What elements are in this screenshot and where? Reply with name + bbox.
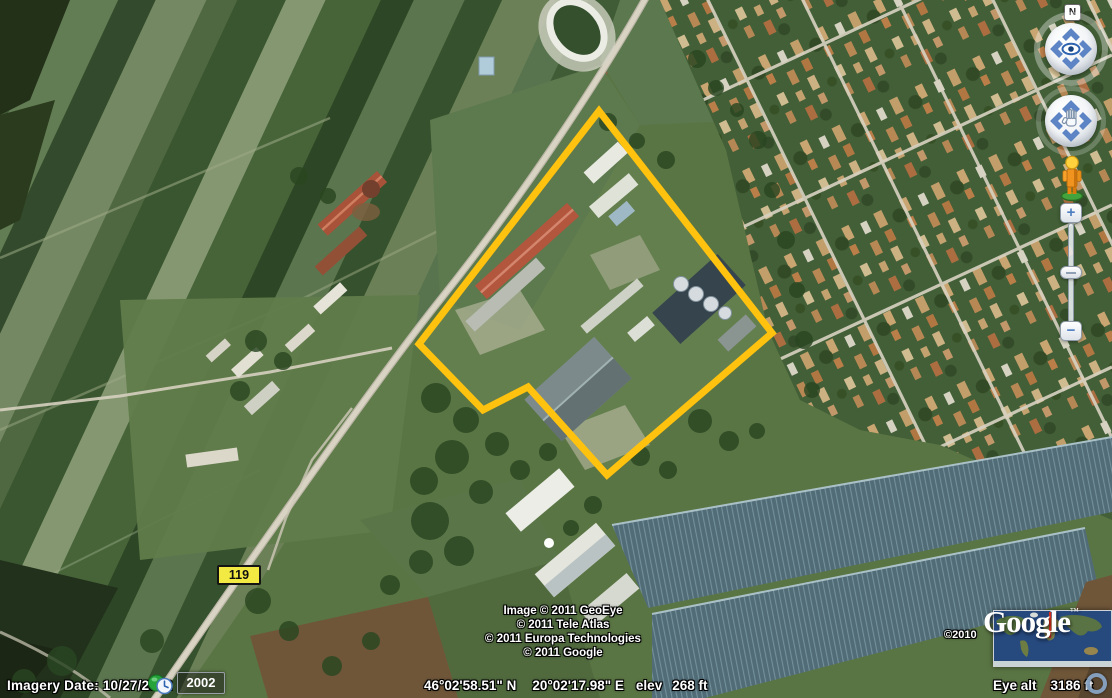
elevation-label: elev: [636, 678, 662, 693]
time-slider-year-box[interactable]: 2002: [177, 672, 225, 694]
historical-imagery-clock-icon[interactable]: [148, 673, 175, 696]
move-joystick[interactable]: [1045, 95, 1097, 147]
move-right-arrow[interactable]: [1081, 114, 1088, 128]
zoom-out-button[interactable]: −: [1060, 321, 1082, 341]
attribution-line: Image © 2011 GeoEye: [463, 604, 663, 618]
eye-altitude: Eye alt3186 ft: [993, 678, 1093, 693]
eye-alt-label: Eye alt: [993, 678, 1037, 693]
overview-copyright: ©2010: [944, 629, 977, 641]
look-joystick[interactable]: [1045, 23, 1097, 75]
street-view-pegman[interactable]: [1057, 153, 1087, 202]
streaming-progress-indicator: [1086, 673, 1107, 694]
map-canvas[interactable]: [0, 0, 1112, 698]
look-up-arrow[interactable]: [1064, 32, 1078, 39]
zoom-slider-thumb[interactable]: [1060, 266, 1082, 279]
pointer-coordinates: 46°02'58.51" N20°02'17.98" Eelev268 ft: [424, 678, 707, 693]
move-left-arrow[interactable]: [1054, 114, 1061, 128]
google-earth-viewport: 119 N: [0, 0, 1112, 698]
zoom-in-button[interactable]: +: [1060, 203, 1082, 223]
look-right-arrow[interactable]: [1081, 42, 1088, 56]
look-left-arrow[interactable]: [1054, 42, 1061, 56]
imagery-attribution: Image © 2011 GeoEye © 2011 Tele Atlas © …: [463, 604, 663, 660]
look-down-arrow[interactable]: [1064, 59, 1078, 66]
move-down-arrow[interactable]: [1064, 131, 1078, 138]
attribution-line: © 2011 Europa Technologies: [463, 632, 663, 646]
attribution-line: © 2011 Google: [463, 646, 663, 660]
hand-icon[interactable]: [1062, 110, 1076, 127]
trademark-symbol: ™: [1070, 606, 1079, 616]
road-sign-119-badge: 119: [217, 565, 261, 585]
longitude: 20°02'17.98" E: [532, 678, 624, 693]
google-logo: Google™: [983, 604, 1079, 640]
latitude: 46°02'58.51" N: [424, 678, 516, 693]
elevation-value: 268 ft: [672, 678, 707, 693]
eye-icon[interactable]: [1063, 44, 1080, 54]
attribution-line: © 2011 Tele Atlas: [463, 618, 663, 632]
